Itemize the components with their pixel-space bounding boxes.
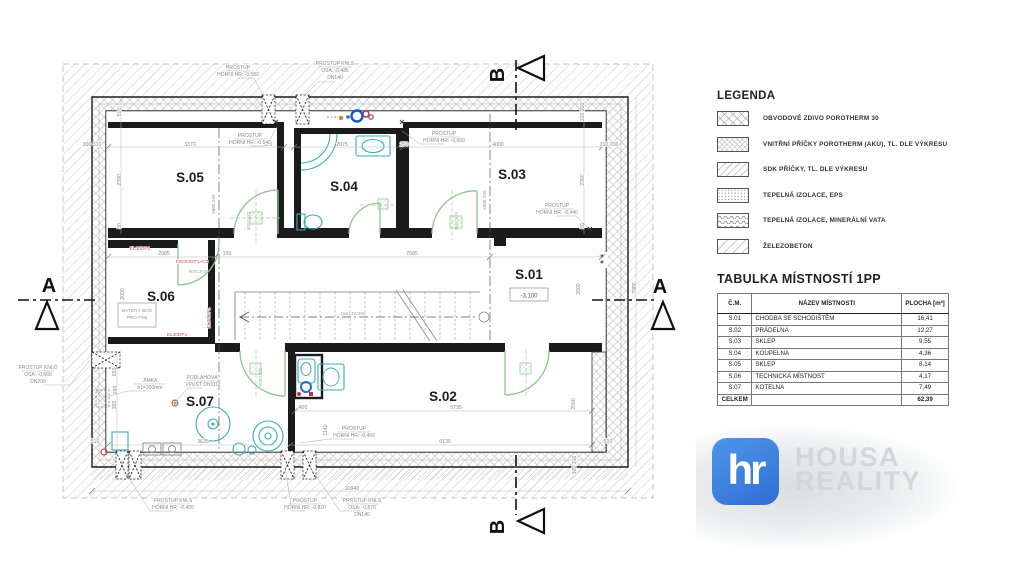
svg-text:DN200: DN200 <box>30 379 46 385</box>
svg-text:900/1970: 900/1970 <box>258 367 263 386</box>
table-header-row: Č.M. NÁZEV MÍSTNOSTI PLOCHA [m²] <box>718 294 949 314</box>
cell-name: CHODBA SE SCHODIŠTĚM <box>752 314 902 326</box>
svg-text:HORNÍ HR: -0,540: HORNÍ HR: -0,540 <box>229 139 271 146</box>
hatch-swatch-icon <box>717 111 749 126</box>
svg-text:10940: 10940 <box>345 486 360 492</box>
room-label-s06: S.06 <box>147 289 175 304</box>
cell-cm: S.07 <box>718 383 752 395</box>
legend-item-label: SDK PŘÍČKY, TL. DLE VÝKRESU <box>763 166 867 173</box>
column-axis-label: HEB 240 <box>211 194 217 214</box>
svg-text:OSA: -0,870: OSA: -0,870 <box>348 505 376 511</box>
screenshot-root: 18x172/300 HEB 240 HEB 240 <box>0 0 1024 576</box>
total-spacer <box>752 394 902 406</box>
cell-area: 16,41 <box>902 314 949 326</box>
column-axis-label: HEB 240 <box>482 190 488 210</box>
cell-cm: S.03 <box>718 337 752 349</box>
svg-text:EL30DP1: EL30DP1 <box>130 246 151 252</box>
cell-name: TECHNICKÁ MÍSTNOST <box>752 371 902 383</box>
svg-text:800/1970: 800/1970 <box>454 211 459 230</box>
svg-text:510: 510 <box>117 108 123 117</box>
svg-text:-3,100: -3,100 <box>520 294 538 300</box>
svg-text:2390: 2390 <box>117 174 123 186</box>
svg-text:EW30/DP1+C3: EW30/DP1+C3 <box>176 259 209 265</box>
total-value: 62,39 <box>902 394 949 406</box>
table-row: S.06TECHNICKÁ MÍSTNOST4,17 <box>718 371 949 383</box>
cell-name: KOUPELNA <box>752 348 902 360</box>
cell-area: 4,36 <box>902 348 949 360</box>
hatch-swatch-icon <box>717 213 749 228</box>
svg-text:DN140: DN140 <box>354 512 370 518</box>
svg-text:310 200: 310 200 <box>600 142 619 148</box>
svg-text:2360: 2360 <box>580 174 586 186</box>
hatch-swatch-icon <box>717 137 749 152</box>
svg-text:PROSTUP: PROSTUP <box>342 426 367 432</box>
cell-name: SKLEP <box>752 360 902 372</box>
svg-text:PROSTUP: PROSTUP <box>238 133 263 139</box>
hatch-swatch-icon <box>717 188 749 203</box>
hatch-swatch-icon <box>717 162 749 177</box>
svg-text:290: 290 <box>113 386 119 395</box>
table-row: S.04KOUPELNA4,36 <box>718 348 949 360</box>
legend: LEGENDA OBVODOVÉ ZDIVO POROTHERM 30 VNIT… <box>717 90 947 264</box>
svg-text:VPUSŤ DN110: VPUSŤ DN110 <box>185 380 218 388</box>
col-header-area: PLOCHA [m²] <box>902 294 949 314</box>
svg-text:150: 150 <box>223 251 232 257</box>
svg-text:310 200: 310 200 <box>580 103 586 122</box>
svg-text:3635: 3635 <box>197 439 209 445</box>
svg-text:5735: 5735 <box>450 405 462 411</box>
cell-cm: S.02 <box>718 325 752 337</box>
svg-text:HORNÍ HR: -0,820: HORNÍ HR: -0,820 <box>284 504 326 511</box>
svg-text:2075: 2075 <box>336 142 348 148</box>
svg-text:PODLAHOVÁ: PODLAHOVÁ <box>186 374 218 381</box>
brand-wordmark: HOUSA REALITY <box>795 446 921 493</box>
svg-text:7880: 7880 <box>632 282 638 294</box>
svg-text:1140: 1140 <box>323 424 329 435</box>
hatch-swatch-icon <box>717 239 749 254</box>
svg-text:HORNÍ HR: -0,450: HORNÍ HR: -0,450 <box>333 432 375 439</box>
cell-area: 9,55 <box>902 337 949 349</box>
svg-text:PROSTUP KNLS: PROSTUP KNLS <box>154 498 193 504</box>
cell-area: 4,17 <box>902 371 949 383</box>
svg-text:h1=300mm: h1=300mm <box>137 385 162 391</box>
svg-text:7685: 7685 <box>406 251 418 257</box>
svg-text:300 310: 300 310 <box>572 456 578 475</box>
cell-cm: S.05 <box>718 360 752 372</box>
cell-name: KOTELNA <box>752 383 902 395</box>
outer-walls <box>92 97 628 467</box>
legend-title: LEGENDA <box>717 90 947 102</box>
svg-text:HORNÍ HR: -0,500: HORNÍ HR: -0,500 <box>423 137 465 144</box>
room-label-s04: S.04 <box>330 179 358 194</box>
section-b-top: B <box>487 68 509 82</box>
housa-logo-icon: hr <box>712 438 779 505</box>
cell-cm: S.04 <box>718 348 752 360</box>
right-panel: LEGENDA OBVODOVÉ ZDIVO POROTHERM 30 VNIT… <box>700 0 1024 576</box>
svg-text:OSA: -0,660: OSA: -0,660 <box>24 372 52 378</box>
cell-cm: S.01 <box>718 314 752 326</box>
table-row: S.05SKLEP8,14 <box>718 360 949 372</box>
svg-text:3370: 3370 <box>184 142 196 148</box>
brand-name-line2: REALITY <box>795 470 921 494</box>
svg-text:HORNÍ HR: -0,400: HORNÍ HR: -0,400 <box>152 504 194 511</box>
legend-item: VNITŘNÍ PŘÍČKY POROTHERM (AKU), TL. DLE … <box>717 137 947 152</box>
col-header-cm: Č.M. <box>718 294 752 314</box>
svg-text:400: 400 <box>299 405 308 411</box>
table-row: S.02PRÁDELNA12,27 <box>718 325 949 337</box>
level-tag: -3,100 <box>510 288 548 301</box>
legend-item: TEPELNÁ IZOLACE, MINERÁLNÍ VATA <box>717 213 947 228</box>
svg-text:PRO FVE: PRO FVE <box>126 315 147 321</box>
room-label-s02: S.02 <box>429 389 457 404</box>
legend-item-label: VNITŘNÍ PŘÍČKY POROTHERM (AKU), TL. DLE … <box>763 141 947 148</box>
cell-area: 8,14 <box>902 360 949 372</box>
legend-item-label: OBVODOVÉ ZDIVO POROTHERM 30 <box>763 115 879 122</box>
table-row: S.01CHODBA SE SCHODIŠTĚM16,41 <box>718 314 949 326</box>
svg-text:800/1970: 800/1970 <box>246 211 251 230</box>
cell-name: PRÁDELNA <box>752 325 902 337</box>
room-table: TABULKA MÍSTNOSTÍ 1PP Č.M. NÁZEV MÍSTNOS… <box>717 272 953 406</box>
floor-plan: 18x172/300 HEB 240 HEB 240 <box>0 0 700 576</box>
section-a-left: A <box>42 275 56 297</box>
svg-text:DN140: DN140 <box>327 75 343 81</box>
svg-text:OSA: -0,485: OSA: -0,485 <box>321 68 349 74</box>
room-label-s03: S.03 <box>498 167 526 182</box>
cell-area: 7,49 <box>902 383 949 395</box>
svg-text:PROSTUP KNLS: PROSTUP KNLS <box>316 61 355 67</box>
svg-text:EL30DP1: EL30DP1 <box>206 307 212 328</box>
svg-text:EL30DP1: EL30DP1 <box>167 332 188 338</box>
svg-text:2000: 2000 <box>576 283 582 295</box>
total-label: CELKEM <box>718 394 752 406</box>
room-label-s07: S.07 <box>186 394 214 409</box>
svg-text:JÍMKA: JÍMKA <box>143 377 158 384</box>
svg-text:50: 50 <box>580 223 586 229</box>
svg-text:300 310: 300 310 <box>83 142 102 148</box>
svg-text:510: 510 <box>604 439 613 445</box>
svg-text:PROSTUP: PROSTUP <box>432 131 457 137</box>
svg-text:PROSTUP KNLS: PROSTUP KNLS <box>343 498 382 504</box>
svg-text:PROSTUP: PROSTUP <box>293 498 318 504</box>
svg-text:6135: 6135 <box>439 439 451 445</box>
svg-text:650: 650 <box>112 368 118 377</box>
cell-name: SKLEP <box>752 337 902 349</box>
svg-text:PROSTUP: PROSTUP <box>545 203 570 209</box>
svg-text:150: 150 <box>400 142 409 148</box>
table-row: S.07KOTELNA7,49 <box>718 383 949 395</box>
svg-text:300: 300 <box>112 401 118 410</box>
legend-item: TEPELNÁ IZOLACE, EPS <box>717 188 947 203</box>
table-row: S.03SKLEP9,55 <box>718 337 949 349</box>
legend-item: ŽELEZOBETON <box>717 239 947 254</box>
svg-text:HORNÍ HR: -0,580: HORNÍ HR: -0,580 <box>217 71 259 78</box>
room-table-title: TABULKA MÍSTNOSTÍ 1PP <box>717 272 953 286</box>
room-label-s05: S.05 <box>176 170 204 185</box>
svg-text:HORNÍ HR: -0,440: HORNÍ HR: -0,440 <box>536 209 578 216</box>
legend-item: SDK PŘÍČKY, TL. DLE VÝKRESU <box>717 162 947 177</box>
svg-text:2060: 2060 <box>571 398 577 410</box>
svg-text:800/1970: 800/1970 <box>189 269 208 274</box>
cell-cm: S.06 <box>718 371 752 383</box>
section-b-bottom: B <box>487 520 509 534</box>
svg-text:BATERY BOX: BATERY BOX <box>122 308 153 314</box>
room-label-s01: S.01 <box>515 267 543 282</box>
table-total-row: CELKEM62,39 <box>718 394 949 406</box>
svg-text:2000: 2000 <box>120 288 126 300</box>
svg-text:4000: 4000 <box>492 142 504 148</box>
svg-text:2085: 2085 <box>158 251 170 257</box>
stair-label: 18x172/300 <box>340 311 365 317</box>
legend-item-label: TEPELNÁ IZOLACE, EPS <box>763 192 843 199</box>
logo-monogram: hr <box>728 446 764 494</box>
cell-area: 12,27 <box>902 325 949 337</box>
svg-text:510: 510 <box>91 439 100 445</box>
legend-item: OBVODOVÉ ZDIVO POROTHERM 30 <box>717 111 947 126</box>
svg-text:50: 50 <box>117 223 123 229</box>
legend-item-label: ŽELEZOBETON <box>763 243 813 250</box>
col-header-name: NÁZEV MÍSTNOSTI <box>752 294 902 314</box>
section-a-right: A <box>653 276 667 298</box>
svg-text:PROSTUP: PROSTUP <box>226 65 251 71</box>
svg-text:PROSTUP KNLO: PROSTUP KNLO <box>18 365 57 371</box>
legend-item-label: TEPELNÁ IZOLACE, MINERÁLNÍ VATA <box>763 217 886 224</box>
